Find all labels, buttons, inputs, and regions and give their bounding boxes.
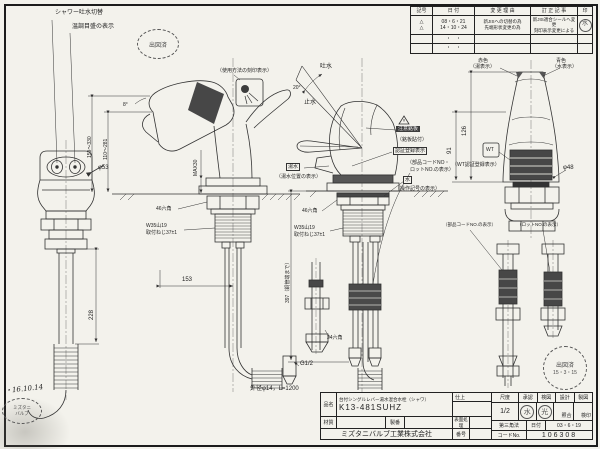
dim-hex46-side: 46六角 (302, 208, 318, 214)
finish-value (453, 402, 491, 416)
label-wt-box: WT (486, 147, 494, 153)
label-red-sub: （湯表示） (470, 64, 495, 70)
approve-header-3: 設計 (556, 393, 575, 402)
dim-hex46-front: 46六角 (156, 206, 172, 212)
dim-d110: 110〜281 (103, 139, 109, 160)
material-value (337, 417, 386, 428)
seal-1: 水 (520, 405, 534, 419)
view-handshower-front (28, 140, 104, 419)
dim-screw37-front: 取付ねじ37±1 (146, 230, 177, 236)
rev-header-symbol: 記号 (411, 7, 432, 15)
leader-lines-left (52, 20, 75, 163)
rev-row1-stamp: 水 (577, 16, 592, 34)
rev-row2-reason (474, 35, 530, 43)
surface-label: 表面処理 (453, 417, 470, 428)
part-number: K13-481SUHZ (339, 403, 452, 412)
bango-value (470, 429, 491, 439)
dim-w35-side: W35山19 (294, 225, 315, 231)
material-label: 材質 (321, 417, 337, 428)
label-yusui: （湯水位置の表示） (276, 174, 321, 180)
approve-sign-4: 検印 (574, 403, 593, 420)
dim-d126: 126 (462, 126, 469, 136)
label-yusui-box: 湯水 (286, 163, 300, 171)
label-g12: G1/2 (300, 361, 313, 368)
code-label: コードNo. (492, 431, 527, 439)
rev-row1-symbol: △ △ (411, 16, 432, 34)
dim-d153: 153 (182, 277, 192, 284)
title-block-left: 品名 台付シングルレバー湯水混合水栓（シャワ） K13-481SUHZ 材質 製… (321, 393, 453, 439)
dim-angle20: 20° (293, 85, 301, 91)
rev-corr-1: 新JIS適合シールへ変更 (531, 17, 577, 28)
dim-angle8: 8° (123, 102, 128, 108)
bango-label: 番号 (453, 429, 470, 439)
date-value: 03・6・19 (546, 421, 592, 430)
rev-header-correction: 訂 正 記 事 (530, 7, 577, 15)
label-op-symbol: （操作記号の表示） (395, 186, 440, 192)
dim-d48: φ48 (563, 165, 574, 172)
rev-header-stamp: 印 (577, 7, 592, 15)
rev-corr-2: 刻印表示変更による (534, 28, 574, 34)
title-block-right: 尺度 承認 検図 設計 製図 1/2 水 光 照合 検印 第三角法 日付 03・… (492, 393, 592, 439)
label-cert-box: 認証登録表示 (393, 147, 427, 155)
label-close: 止水 (304, 100, 316, 107)
item-label: 品名 (321, 393, 337, 416)
stamp-br-text: 出図済 (556, 360, 574, 369)
stamp-top: 出図済 (137, 29, 179, 59)
label-water-box: 水 (403, 176, 412, 184)
rev-row2-symbol (411, 35, 432, 43)
label-plate-paste: （銘板貼付） (397, 137, 427, 143)
finish-label: 仕上 (453, 393, 491, 402)
label-wt: （WT認証登録表示） (452, 162, 500, 168)
scale-value: 1/2 (492, 403, 519, 420)
label-shower-switch: シャワー吐水切替 (55, 10, 103, 17)
rev-stamp-seal: 水 (579, 19, 592, 32)
rev-row1-correction: 新JIS適合シールへ変更 刻印表示変更による (530, 16, 577, 34)
dim-screw37-side: 取付ねじ37±1 (294, 232, 325, 238)
surface-value (470, 417, 491, 428)
dim-max30: MAX30 (193, 160, 199, 176)
stamp-bottom-right: 出図済 15・3・15 (543, 346, 587, 390)
label-parts-code: （部品コードNO・ (407, 160, 450, 166)
label-temp-display: 温調目盛の表示 (72, 24, 114, 31)
dim-d91: 91 (447, 147, 454, 154)
projection-label: 第三角法 (492, 421, 527, 430)
rev-row3-symbol (411, 44, 432, 53)
rev-header-date: 日 付 (432, 7, 474, 15)
company-name: ミズタニバルブ工業株式会社 (321, 429, 452, 439)
revision-table: 記号 日 付 変 更 理 由 訂 正 記 事 印 △ △ 08・6・21 14・… (410, 6, 593, 54)
label-lot-no: ロットNO.の表示） (410, 167, 454, 173)
stamp-bottom-left: ミズタニ バルブ (2, 398, 42, 424)
seiban-label: 製番 (386, 417, 405, 428)
label-pipe-left: （部品コードNO.の表示） (443, 222, 496, 227)
scale-label: 尺度 (492, 393, 519, 402)
label-usage-mark: （使用方法の刻印表示） (217, 68, 272, 74)
seiban-value (405, 417, 452, 428)
seal-2: 光 (538, 405, 552, 419)
dim-d228: 228 (89, 310, 96, 320)
approve-header-2: 検図 (538, 393, 557, 402)
dim-d53: φ53 (98, 165, 109, 172)
stamp-bl-line2: バルブ (15, 411, 29, 417)
rev-row3-reason (474, 44, 530, 53)
label-caution-plate: 注意銘板 (396, 126, 420, 132)
label-blue-sub: （水表示） (552, 64, 577, 70)
rev-reason-2: 先端形状変更の為 (485, 25, 521, 31)
dim-w35-front: W35山19 (146, 223, 167, 229)
drawing-sheet: シャワー吐水切替 温調目盛の表示 （使用方法の刻印表示） 吐水 止水 20° 8… (0, 0, 600, 449)
dim-d159: 159〜330 (87, 136, 93, 158)
stamp-top-text: 出図済 (149, 40, 167, 49)
rev-row3-correction (530, 44, 577, 53)
title-block: 品名 台付シングルレバー湯水混合水栓（シャワ） K13-481SUHZ 材質 製… (320, 392, 593, 440)
rev-row3-stamp (577, 44, 592, 53)
rev-header-reason: 変 更 理 由 (474, 7, 530, 15)
rev-row1-date: 08・6・21 14・10・24 (432, 16, 474, 34)
rev-row1-reason: 新JISへの切替の為 先端形状変更の為 (474, 16, 530, 34)
rev-row3-date: ・ ・ (432, 44, 474, 53)
rev-date-2: 14・10・24 (440, 25, 467, 31)
rev-row2-date: ・ ・ (432, 35, 474, 43)
rev-row2-stamp (577, 35, 592, 43)
approve-header-1: 承認 (519, 393, 538, 402)
dim-hex24: 24六角 (327, 335, 343, 341)
dim-d397: 397（銅管端まで） (285, 260, 291, 303)
label-hose-note: 外径φ14，L=1200 (250, 386, 299, 393)
date-label: 日付 (527, 421, 546, 430)
approve-stamp-1: 水 (519, 403, 537, 420)
view-faucet-front (88, 58, 300, 392)
approve-sign-3: 照合 (554, 403, 574, 420)
title-block-middle: 仕上 表面処理 番号 (453, 393, 492, 439)
approve-header-4: 製図 (575, 393, 593, 402)
rev-symbol-2: △ (420, 25, 424, 31)
code-value: 106308 (527, 431, 592, 439)
label-pipe-right: （ロットNO.の表示） (517, 222, 561, 227)
approve-stamp-2: 光 (537, 403, 555, 420)
rev-row2-correction (530, 35, 577, 43)
stamp-br-date: 15・3・15 (553, 369, 577, 376)
label-open: 吐水 (320, 64, 332, 71)
